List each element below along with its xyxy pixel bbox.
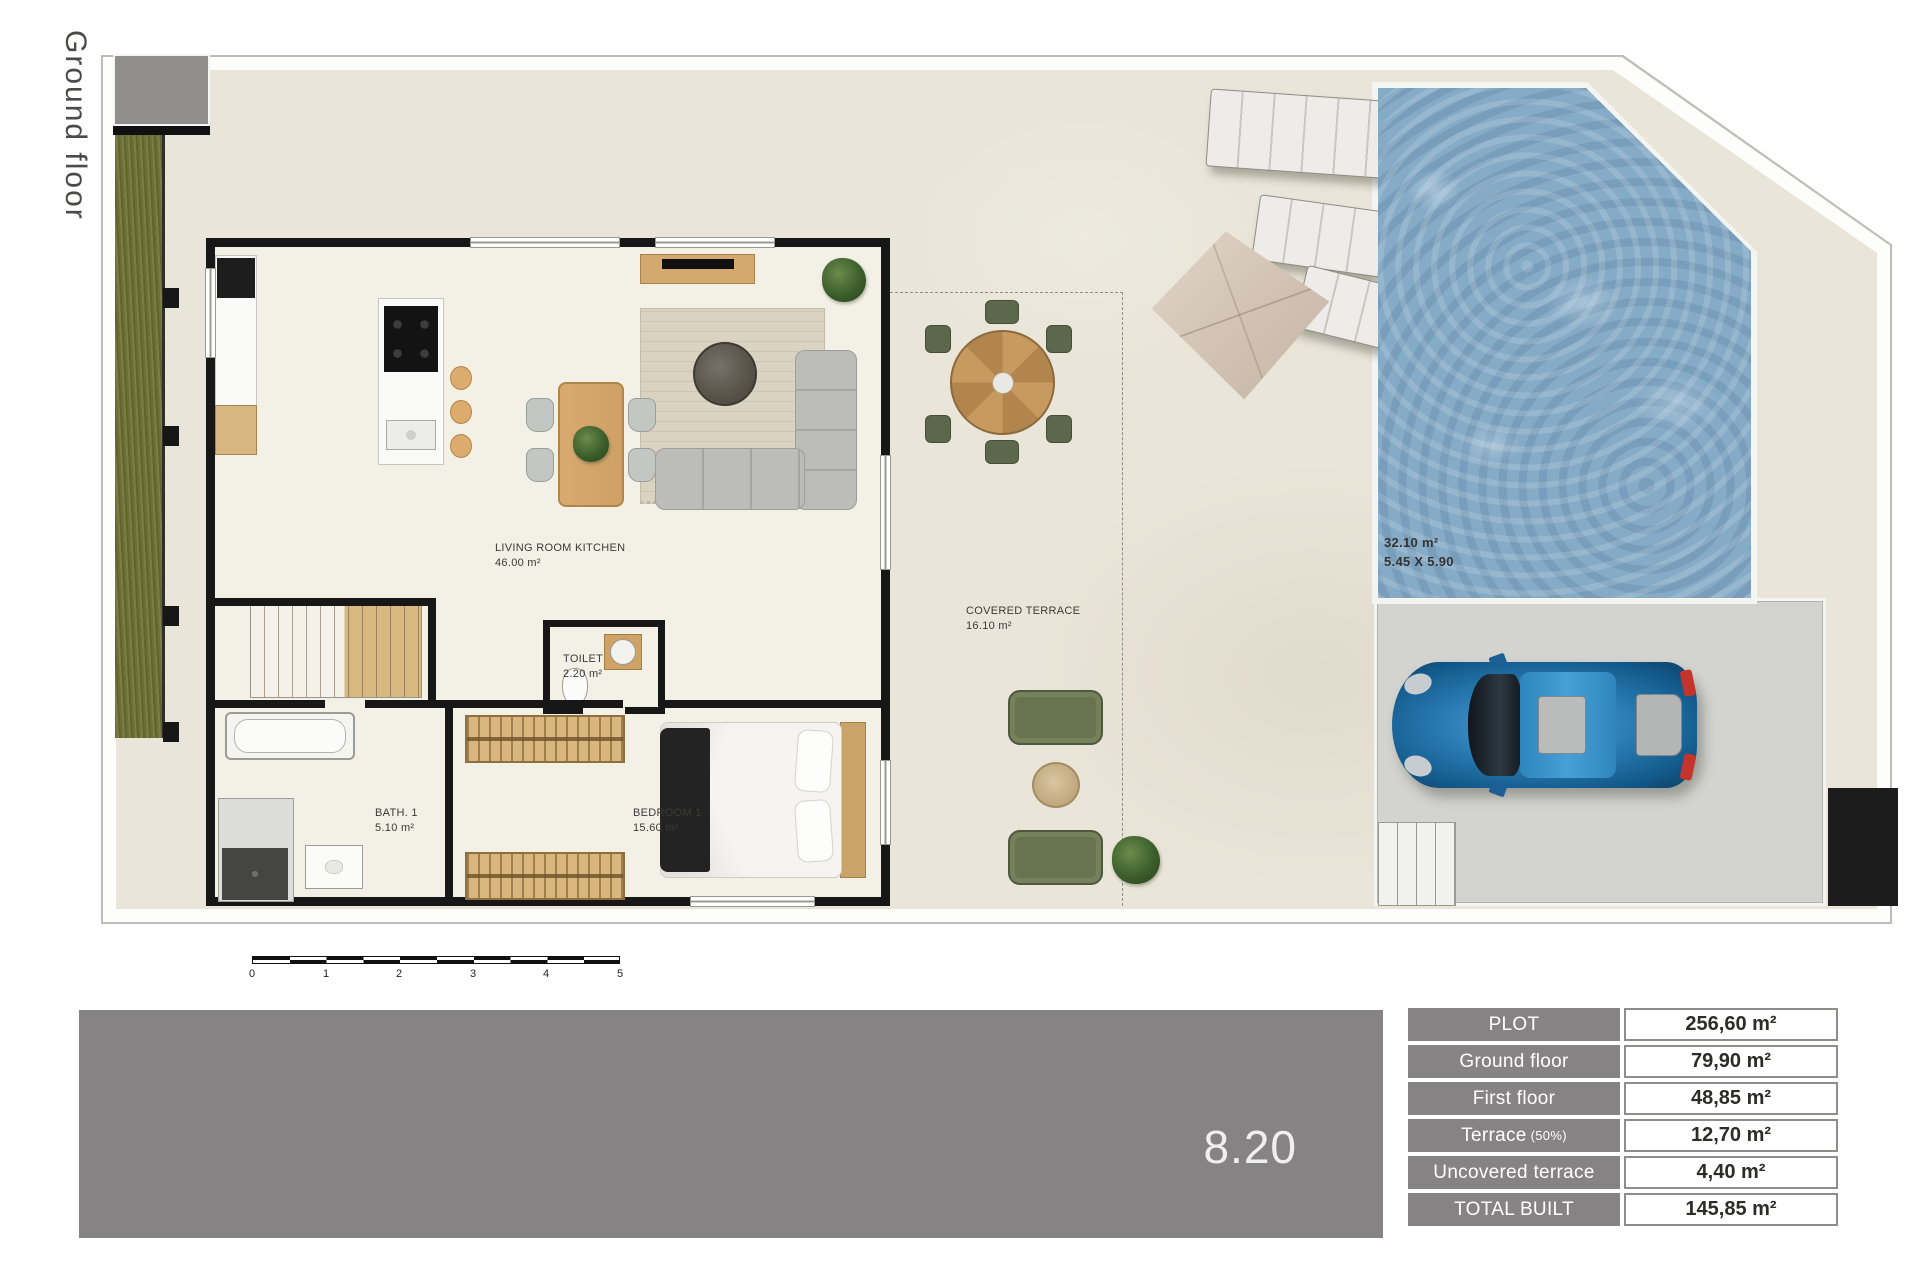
row-value: 145,85 m² — [1624, 1193, 1838, 1226]
kitchen-cabinet — [215, 405, 257, 455]
terrace-chair — [985, 440, 1019, 464]
bed-headboard — [840, 722, 866, 878]
garden-strip — [115, 130, 165, 738]
scale-tick: 2 — [396, 968, 402, 980]
row-label-text: PLOT — [1489, 1014, 1540, 1036]
toilet-wall — [658, 620, 665, 714]
room-name: TOILET — [563, 652, 603, 667]
exterior-steps — [1378, 822, 1456, 906]
row-value: 48,85 m² — [1624, 1082, 1838, 1115]
interior-wall — [215, 598, 436, 606]
pillow — [794, 799, 834, 863]
row-label: PLOT — [1408, 1008, 1620, 1041]
table-row-ground-floor: Ground floor 79,90 m² — [1408, 1045, 1838, 1078]
row-value: 12,70 m² — [1624, 1119, 1838, 1152]
scale-bar — [252, 960, 620, 964]
row-label-text: Terrace — [1461, 1125, 1526, 1147]
areas-table: PLOT 256,60 m² Ground floor 79,90 m² Fir… — [1408, 1008, 1838, 1230]
scale-tick: 1 — [323, 968, 329, 980]
dining-chair — [628, 398, 656, 432]
row-label-text: Uncovered terrace — [1433, 1162, 1594, 1184]
interior-wall — [663, 700, 890, 708]
table-row-terrace: Terrace (50%) 12,70 m² — [1408, 1119, 1838, 1152]
sliding-door — [880, 455, 891, 570]
interior-wall — [215, 700, 325, 708]
unit-number: 8.20 — [1203, 1120, 1297, 1174]
dining-chair — [628, 448, 656, 482]
dining-chair — [526, 398, 554, 432]
row-label-text: TOTAL BUILT — [1454, 1199, 1574, 1221]
terrace-chair — [925, 325, 951, 353]
row-label: Uncovered terrace — [1408, 1156, 1620, 1189]
kitchen-appliance — [217, 258, 255, 298]
corner-plant — [822, 258, 866, 302]
page-title: Ground floor — [58, 30, 92, 221]
terrace-loveseat — [1008, 830, 1103, 885]
floor-plan-page: Ground floor — [0, 0, 1920, 1280]
table-row-first-floor: First floor 48,85 m² — [1408, 1082, 1838, 1115]
toilet-sink — [610, 639, 636, 665]
sofa — [655, 448, 805, 510]
kitchen-sink — [386, 420, 436, 450]
toilet-wall — [543, 620, 665, 627]
interior-wall — [453, 700, 623, 708]
terrace-chair — [1046, 415, 1072, 443]
terrace-chair — [1046, 325, 1072, 353]
window — [655, 237, 775, 248]
room-area: 15.60 m² — [633, 821, 702, 836]
cooktop — [384, 306, 438, 372]
entrance-wall — [113, 126, 210, 135]
wardrobe — [465, 852, 625, 900]
terrace-loveseat — [1008, 690, 1103, 745]
room-area: 2.20 m² — [563, 667, 603, 682]
room-name: BATH. 1 — [375, 806, 418, 821]
terrace-chair — [985, 300, 1019, 324]
boundary-block — [1828, 788, 1898, 906]
pool-area: 32.10 m² — [1384, 534, 1454, 553]
bar-stool — [450, 366, 472, 390]
scale-tick: 3 — [470, 968, 476, 980]
scale-tick: 4 — [543, 968, 549, 980]
pillow — [794, 729, 834, 793]
pool-dimensions: 5.45 X 5.90 — [1384, 553, 1454, 572]
wardrobe — [465, 715, 625, 763]
room-area: 16.10 m² — [966, 619, 1080, 634]
coffee-table — [693, 342, 757, 406]
terrace-chair — [925, 415, 951, 443]
terrace-plant — [1112, 836, 1160, 884]
room-name: COVERED TERRACE — [966, 604, 1080, 619]
wall-pier — [163, 426, 179, 446]
rattan-table — [1032, 762, 1080, 808]
tv — [662, 259, 734, 269]
row-value: 256,60 m² — [1624, 1008, 1838, 1041]
row-value: 79,90 m² — [1624, 1045, 1838, 1078]
table-plant — [573, 426, 609, 462]
info-bar: 8.20 — [79, 1010, 1383, 1238]
room-area: 5.10 m² — [375, 821, 418, 836]
stairs — [250, 604, 422, 698]
bed-throw — [660, 728, 710, 872]
car — [1392, 662, 1697, 788]
interior-wall — [428, 598, 436, 702]
toilet-wall — [543, 707, 583, 714]
car-rear-window — [1636, 694, 1682, 756]
row-label: Terrace (50%) — [1408, 1119, 1620, 1152]
window — [880, 760, 891, 845]
scale-tick: 0 — [249, 968, 255, 980]
wall-pier — [163, 722, 179, 742]
terrace-table-center — [992, 372, 1014, 394]
scale-tick: 5 — [617, 968, 623, 980]
wall-pier — [163, 288, 179, 308]
table-row-uncovered-terrace: Uncovered terrace 4,40 m² — [1408, 1156, 1838, 1189]
bar-stool — [450, 400, 472, 424]
shower-tray — [222, 848, 288, 900]
row-label: Ground floor — [1408, 1045, 1620, 1078]
sun-lounger — [1206, 88, 1401, 179]
toilet-wall — [625, 707, 665, 714]
row-label-text: First floor — [1473, 1088, 1555, 1110]
room-label-toilet: TOILET 2.20 m² — [563, 652, 603, 682]
window — [205, 268, 216, 358]
car-sunroof — [1538, 696, 1586, 754]
terrace-dashed-line — [1122, 292, 1123, 906]
window — [470, 237, 620, 248]
room-label-covered-terrace: COVERED TERRACE 16.10 m² — [966, 604, 1080, 634]
interior-wall — [365, 700, 453, 708]
bath-sink — [305, 845, 363, 889]
room-label-bath-1: BATH. 1 5.10 m² — [375, 806, 418, 836]
interior-wall — [445, 700, 453, 906]
room-name: BEDROOM 1 — [633, 806, 702, 821]
room-name: LIVING ROOM KITCHEN — [495, 541, 625, 556]
row-label: TOTAL BUILT — [1408, 1193, 1620, 1226]
toilet-wall — [543, 620, 550, 714]
entrance-slab — [113, 54, 210, 126]
car-windshield — [1468, 674, 1522, 776]
bathtub-inner — [234, 719, 346, 753]
room-area: 46.00 m² — [495, 556, 625, 571]
row-value: 4,40 m² — [1624, 1156, 1838, 1189]
row-label-note: (50%) — [1531, 1128, 1567, 1143]
row-label: First floor — [1408, 1082, 1620, 1115]
table-row-plot: PLOT 256,60 m² — [1408, 1008, 1838, 1041]
room-label-living-room-kitchen: LIVING ROOM KITCHEN 46.00 m² — [495, 541, 625, 571]
row-label-text: Ground floor — [1459, 1051, 1568, 1073]
pool-label: 32.10 m² 5.45 X 5.90 — [1384, 534, 1454, 572]
dining-chair — [526, 448, 554, 482]
window — [690, 896, 815, 907]
wall-pier — [163, 606, 179, 626]
table-row-total-built: TOTAL BUILT 145,85 m² — [1408, 1193, 1838, 1226]
bar-stool — [450, 434, 472, 458]
room-label-bedroom-1: BEDROOM 1 15.60 m² — [633, 806, 702, 836]
